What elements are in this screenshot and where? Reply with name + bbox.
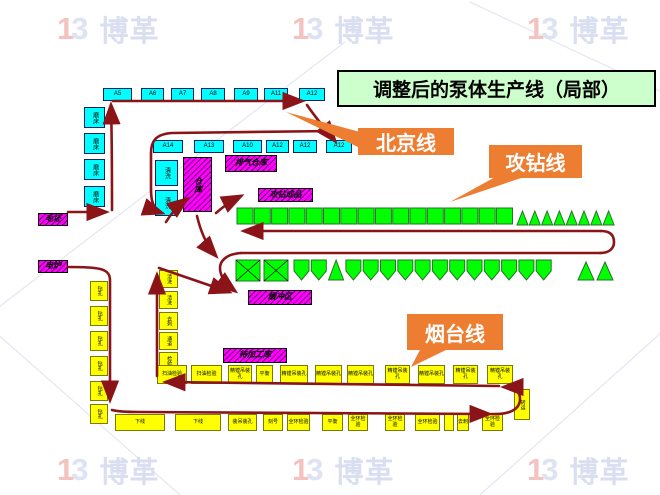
yantai-row-lower: 全环检验 — [415, 414, 440, 431]
yantai-row-lower: 全环检验 — [482, 414, 503, 431]
yantai-row-upper: 精镗吊装孔 — [418, 365, 445, 384]
machine-yellow-left-column-label: 钻孔 — [96, 286, 101, 296]
machine-yellow-mid-column-label: 通道 — [166, 336, 171, 346]
callout-beijing-label: 北京线 — [376, 127, 436, 156]
yantai-row-upper-label: 精镗吊装孔 — [419, 372, 444, 377]
machine-a-row-top-label: A6 — [149, 91, 156, 97]
storage-area: 电炉 — [38, 260, 68, 273]
yantai-row-upper-label: 精镗吊装孔 — [348, 372, 373, 377]
machine-a-row-top-label: A9 — [242, 91, 249, 97]
storage-tall-label: 仓库 — [193, 177, 201, 193]
machine-yellow-left-column: 钻孔 — [90, 381, 108, 401]
machine-yellow-mid-column: 通道 — [159, 332, 178, 350]
machine-mid-column: 清洗 — [155, 190, 178, 216]
machine-left-column-label: 磨床 — [91, 138, 97, 150]
callout-beijing-line: 北京线 — [358, 128, 454, 155]
machine-yellow-left-column: 钻孔 — [90, 281, 108, 301]
yantai-row-upper-label: 平衡 — [259, 372, 269, 377]
yantai-row-lower-label: 全环检验 — [483, 417, 502, 428]
yantai-row-lower: 全环检验 — [287, 414, 310, 431]
machine-mid-column-label: 清洗 — [163, 197, 169, 209]
storage-area: 缓冲区 — [248, 290, 312, 305]
machine-left-column: 磨床 — [84, 107, 105, 128]
callout-drill-tap-label: 攻钻线 — [506, 147, 566, 176]
yantai-row-upper-label: 扫油检验 — [196, 372, 216, 377]
yantai-row-upper-label: 精镗吊装孔 — [386, 369, 409, 380]
yantai-row-lower-label: 平衡 — [327, 420, 337, 425]
yantai-row-upper-label: 精镗吊装孔 — [229, 369, 251, 380]
storage-tall: 仓库 — [183, 157, 212, 212]
yantai-row-lower: 去刺 — [457, 414, 469, 431]
machine-a-row-top-label: A12 — [307, 91, 318, 97]
machine-a-row-top: A9 — [234, 88, 258, 101]
storage-area-label: 毛坯 — [45, 215, 61, 223]
storage-area-label: 排气仓库 — [235, 159, 267, 167]
machine-a-row-top-label: A5 — [114, 91, 121, 97]
storage-area: 待加工库 — [223, 348, 287, 363]
yantai-row-lower: 下线 — [175, 414, 221, 431]
yantai-row-lower-label: 全环检验 — [288, 420, 308, 425]
machine-a-row-second: A13 — [194, 140, 224, 153]
machine-a-row-second-label: A13 — [204, 143, 215, 149]
machine-a-row-top: A11 — [264, 88, 288, 101]
machine-a-row-top: A8 — [201, 88, 225, 101]
yantai-row-upper-label: 精镗吊装孔 — [454, 369, 477, 380]
transfer-box: 转运 — [514, 389, 530, 420]
machine-a-row-second-label: A14 — [163, 143, 174, 149]
machine-a-row-second-label: A10 — [242, 143, 253, 149]
yantai-row-lower-label: 下线 — [135, 420, 145, 425]
machine-yellow-mid-column-label: 清洗 — [166, 274, 171, 284]
yantai-row-upper-label: 精镗吊装孔 — [488, 369, 512, 380]
machine-yellow-mid-column-label: 去刺 — [166, 316, 171, 326]
machine-a-row-top: A5 — [103, 88, 132, 101]
yantai-row-lower-label: 下线 — [193, 420, 203, 425]
machine-left-column: 磨床 — [84, 186, 105, 207]
machine-yellow-mid-column: 清洗 — [159, 291, 178, 309]
machine-left-column: 磨床 — [84, 159, 105, 180]
yantai-row-lower-label: 全环检验 — [417, 420, 437, 425]
yantai-row-lower-label: 去刺 — [458, 420, 468, 425]
machine-mid-column-label: 清洗 — [163, 167, 169, 179]
machine-mid-column: 清洗 — [155, 160, 178, 186]
page-title: 调整后的泵体生产线（局部） — [337, 70, 656, 107]
yantai-row-lower-label: 装吊装孔 — [232, 420, 252, 425]
yantai-row-lower: 全环检验 — [348, 414, 368, 431]
machine-a-row-second: A14 — [153, 140, 183, 153]
yantai-row-upper: 平衡 — [256, 365, 273, 384]
storage-area-label: 缓冲区 — [268, 293, 292, 301]
machine-a-row-second-label: A12 — [300, 143, 311, 149]
yantai-row-upper: 扫油检验 — [157, 365, 187, 384]
machine-yellow-left-column: 钻孔 — [90, 331, 108, 351]
yantai-row-upper: 精镗吊装孔 — [453, 365, 478, 384]
machine-left-column-label: 磨床 — [91, 191, 97, 203]
callout-yantai-line: 烟台线 — [407, 314, 503, 350]
yantai-row-upper: 精镗吊装孔 — [228, 365, 252, 384]
machine-a-row-top-label: A8 — [209, 91, 216, 97]
machine-a-row-second: A12 — [293, 140, 317, 153]
storage-area: 毛坯 — [38, 213, 68, 226]
machine-a-row-top: A7 — [171, 88, 194, 101]
yantai-row-lower: 平衡 — [322, 414, 343, 431]
yantai-row-lower-label: 全环检验 — [386, 417, 404, 428]
yantai-row-lower: 下线 — [115, 414, 165, 431]
machine-a-row-second: A12 — [266, 140, 289, 153]
yantai-row-upper-label: 精镗吊装孔 — [281, 372, 306, 377]
yantai-row-upper-label: 扫油检验 — [162, 372, 182, 377]
machine-a-row-top-label: A7 — [179, 91, 186, 97]
page-title-text: 调整后的泵体生产线（局部） — [373, 75, 620, 102]
yantai-row-upper: 扫油检验 — [191, 365, 222, 384]
yantai-row-upper: 精镗吊装孔 — [280, 365, 308, 384]
storage-area: 排气仓库 — [225, 155, 277, 172]
machine-a-row-top: A6 — [141, 88, 164, 101]
transfer-box-label: 转运 — [519, 400, 524, 410]
machine-yellow-mid-column: 去刺 — [159, 312, 178, 330]
machine-left-column-label: 磨床 — [91, 164, 97, 176]
machine-yellow-left-column-label: 钻孔 — [96, 386, 101, 396]
yantai-row-lower — [444, 414, 454, 431]
callout-drill-tap-line: 攻钻线 — [489, 145, 582, 178]
machine-a-row-second: A10 — [233, 140, 262, 153]
machine-yellow-left-column: 钻孔 — [90, 356, 108, 376]
machine-yellow-mid-column-label: 清洗 — [166, 295, 171, 305]
machine-a-row-second-label: A12 — [334, 143, 345, 149]
yantai-row-lower: 刻号 — [263, 414, 283, 431]
yantai-row-lower-label: 全环检验 — [349, 417, 367, 428]
yantai-row-upper: 精镗吊装孔 — [347, 365, 374, 384]
machine-yellow-left-column: 钻孔 — [90, 306, 108, 326]
yantai-row-upper-label: 精镗吊装孔 — [316, 372, 341, 377]
callout-yantai-label: 烟台线 — [425, 318, 485, 347]
storage-area: 攻钻成品 — [258, 188, 313, 202]
yantai-row-lower: 全环检验 — [385, 414, 405, 431]
storage-area-label: 待加工库 — [239, 351, 271, 359]
machine-yellow-left-column-label: 钻孔 — [96, 311, 101, 321]
machine-left-column: 磨床 — [84, 133, 105, 154]
yantai-row-lower: 装吊装孔 — [228, 414, 257, 431]
storage-area-label: 电炉 — [45, 262, 61, 270]
machine-left-column-label: 磨床 — [91, 112, 97, 124]
yantai-row-upper: 精镗吊装孔 — [385, 365, 410, 384]
machine-a-row-second-label: A12 — [272, 143, 283, 149]
diagram-canvas: 13博革13博革13博革13博革13博革13博革 A5A6A7A8A9A11A1… — [0, 0, 660, 495]
yantai-row-lower-label: 刻号 — [268, 420, 278, 425]
machine-yellow-left-column-label: 钻孔 — [96, 409, 101, 419]
yantai-row-upper: 精镗吊装孔 — [487, 365, 513, 384]
storage-area-label: 攻钻成品 — [270, 191, 302, 199]
machine-a-row-top: A12 — [299, 88, 325, 101]
machine-yellow-left-column-label: 钻孔 — [96, 361, 101, 371]
machine-yellow-left-column: 钻孔 — [90, 404, 108, 424]
machine-yellow-mid-column: 清洗 — [159, 270, 178, 288]
machine-a-row-top-label: A11 — [271, 91, 281, 97]
yantai-row-upper: 精镗吊装孔 — [315, 365, 342, 384]
machine-yellow-left-column-label: 钻孔 — [96, 336, 101, 346]
machine-a-row-second: A12 — [326, 140, 352, 153]
